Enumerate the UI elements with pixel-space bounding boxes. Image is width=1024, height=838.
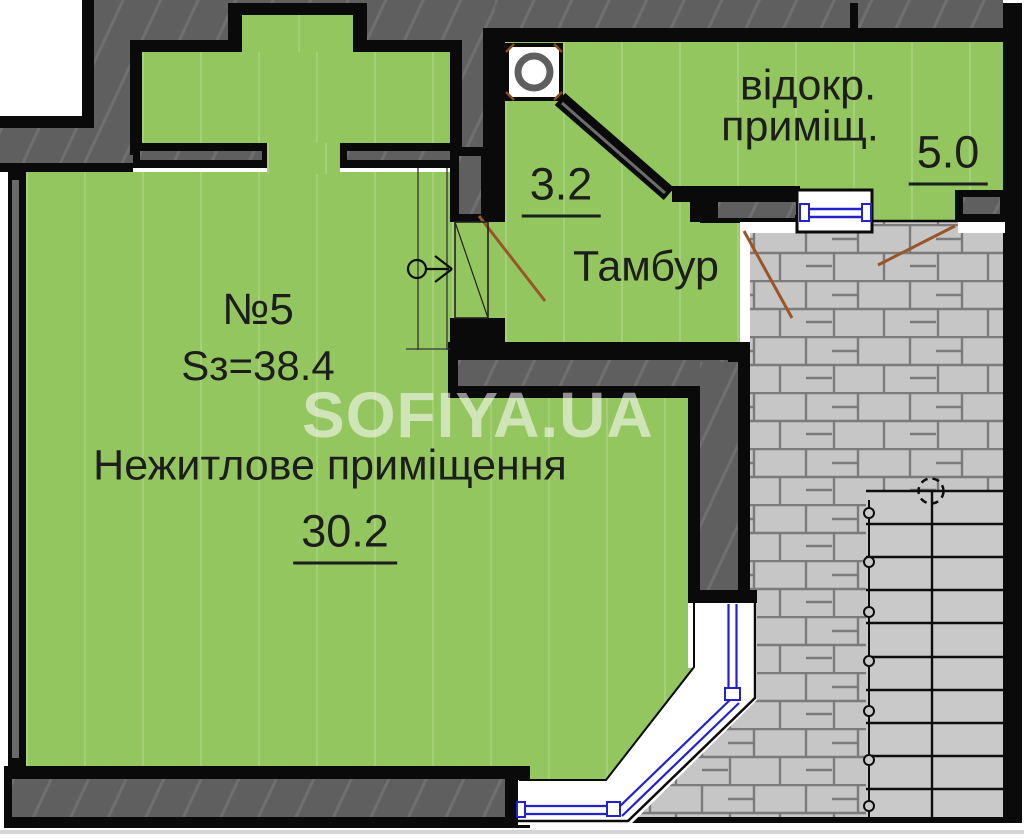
dimension-lines — [406, 168, 450, 350]
room-tambour-name: Тамбур — [573, 243, 719, 292]
ventilation-shaft-circle — [506, 44, 562, 100]
room-tambour-area: 3.2 — [522, 159, 601, 218]
room-separate-area: 5.0 — [909, 127, 988, 186]
window-separate-room — [797, 190, 872, 232]
door-threshold — [740, 222, 797, 233]
watermark: SOFIYA.UA — [302, 378, 654, 452]
floor-plan: №5 Sз=38.4 Нежитлове приміщення 30.2 3.2… — [0, 0, 1024, 838]
room-main-area: 30.2 — [293, 506, 397, 565]
boundary-line — [628, 817, 1022, 823]
door-threshold — [958, 222, 1005, 233]
entrance-arrow-icon — [408, 256, 452, 282]
room-main-number: №5 — [222, 285, 294, 335]
staircase — [864, 491, 1003, 822]
door-leaf — [455, 222, 488, 318]
room-separate-name-line2: приміщ. — [721, 103, 879, 152]
